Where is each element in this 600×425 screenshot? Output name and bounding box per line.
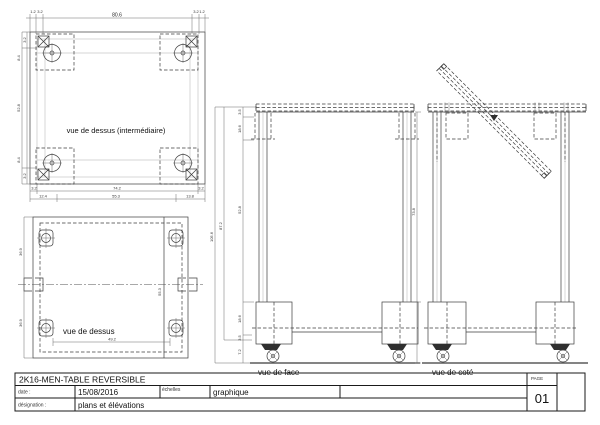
view-side: 73.8	[411, 64, 588, 377]
caster-wheel-icon	[432, 344, 452, 362]
dim-label: 13.8	[186, 194, 195, 199]
view-label-top-intermediate: vue de dessus (intermédiaire)	[67, 126, 166, 135]
dim-label: 1.2	[30, 9, 36, 14]
designation-label: désignation :	[18, 403, 46, 409]
view-top: 55.3 49.2 36.9 36.9 vue	[18, 217, 203, 358]
date-label: date :	[18, 390, 31, 396]
dim-label: 12.4	[39, 194, 48, 199]
dim-label: 3.2	[22, 36, 27, 42]
scales-label: échelles	[162, 387, 181, 393]
dim-label: 36.9	[18, 318, 23, 327]
dim-label: 8.4	[16, 156, 21, 162]
caster-icon	[38, 36, 62, 63]
caster-icon	[173, 153, 197, 180]
dim-label: 87.2	[218, 221, 223, 230]
caster-icon	[38, 153, 62, 180]
dim-label: 3.2	[31, 186, 37, 191]
date-value: 15/08/2016	[78, 388, 119, 397]
caster-wheel-icon	[550, 344, 570, 362]
caster-icon	[173, 36, 197, 63]
dim-label: 1.2	[199, 9, 205, 14]
drawing-canvas: vue de dessus (intermédiaire) 1.2 3.2 80…	[0, 0, 600, 425]
caster-mount-icon	[167, 228, 185, 248]
dim-label: 3.2	[37, 9, 43, 14]
dim-label: 3.2	[22, 172, 27, 178]
dim-label: 55.3	[112, 194, 121, 199]
dim-label: 3.2	[198, 186, 204, 191]
drawing-title: 2K16-MEN-TABLE REVERSIBLE	[19, 375, 146, 385]
caster-wheel-icon	[387, 344, 407, 362]
dim-label: 74.2	[113, 186, 122, 191]
dim-label: 52.8	[16, 103, 21, 112]
title-block: 2K16-MEN-TABLE REVERSIBLE date : 15/08/2…	[15, 373, 585, 411]
view-top-intermediate: vue de dessus (intermédiaire) 1.2 3.2 80…	[16, 9, 209, 202]
dim-label: 73.8	[411, 207, 416, 216]
dim-label: 52.8	[237, 205, 242, 214]
drawing-sheet: vue de dessus (intermédiaire) 1.2 3.2 80…	[0, 0, 600, 425]
dim-label: 49.2	[108, 337, 117, 342]
dim-label: 3.5	[237, 108, 242, 114]
dim-label: 18.6	[237, 314, 242, 323]
page-label: PAGE	[531, 376, 543, 381]
designation-value: plans et élévations	[78, 401, 144, 410]
view-front: 105.6 87.2 3.5 18.6 52.8 18.6 3.5 7.2	[209, 104, 420, 377]
dim-label: 105.6	[209, 231, 214, 242]
caster-mount-icon	[167, 318, 185, 338]
scales-value: graphique	[213, 388, 249, 397]
dim-label: 18.6	[237, 124, 242, 133]
caster-mount-icon	[37, 228, 55, 248]
page-number: 01	[535, 391, 549, 406]
dim-label: 8.4	[16, 54, 21, 60]
dim-label: 7.2	[237, 348, 242, 354]
dim-label: 36.9	[18, 247, 23, 256]
dim-label: 80.6	[112, 13, 122, 19]
dim-label: 3.5	[237, 334, 242, 340]
dim-label: 55.3	[157, 287, 162, 296]
caster-mount-icon	[37, 318, 55, 338]
caster-wheel-icon	[261, 344, 281, 362]
view-label-top: vue de dessus	[63, 327, 115, 336]
